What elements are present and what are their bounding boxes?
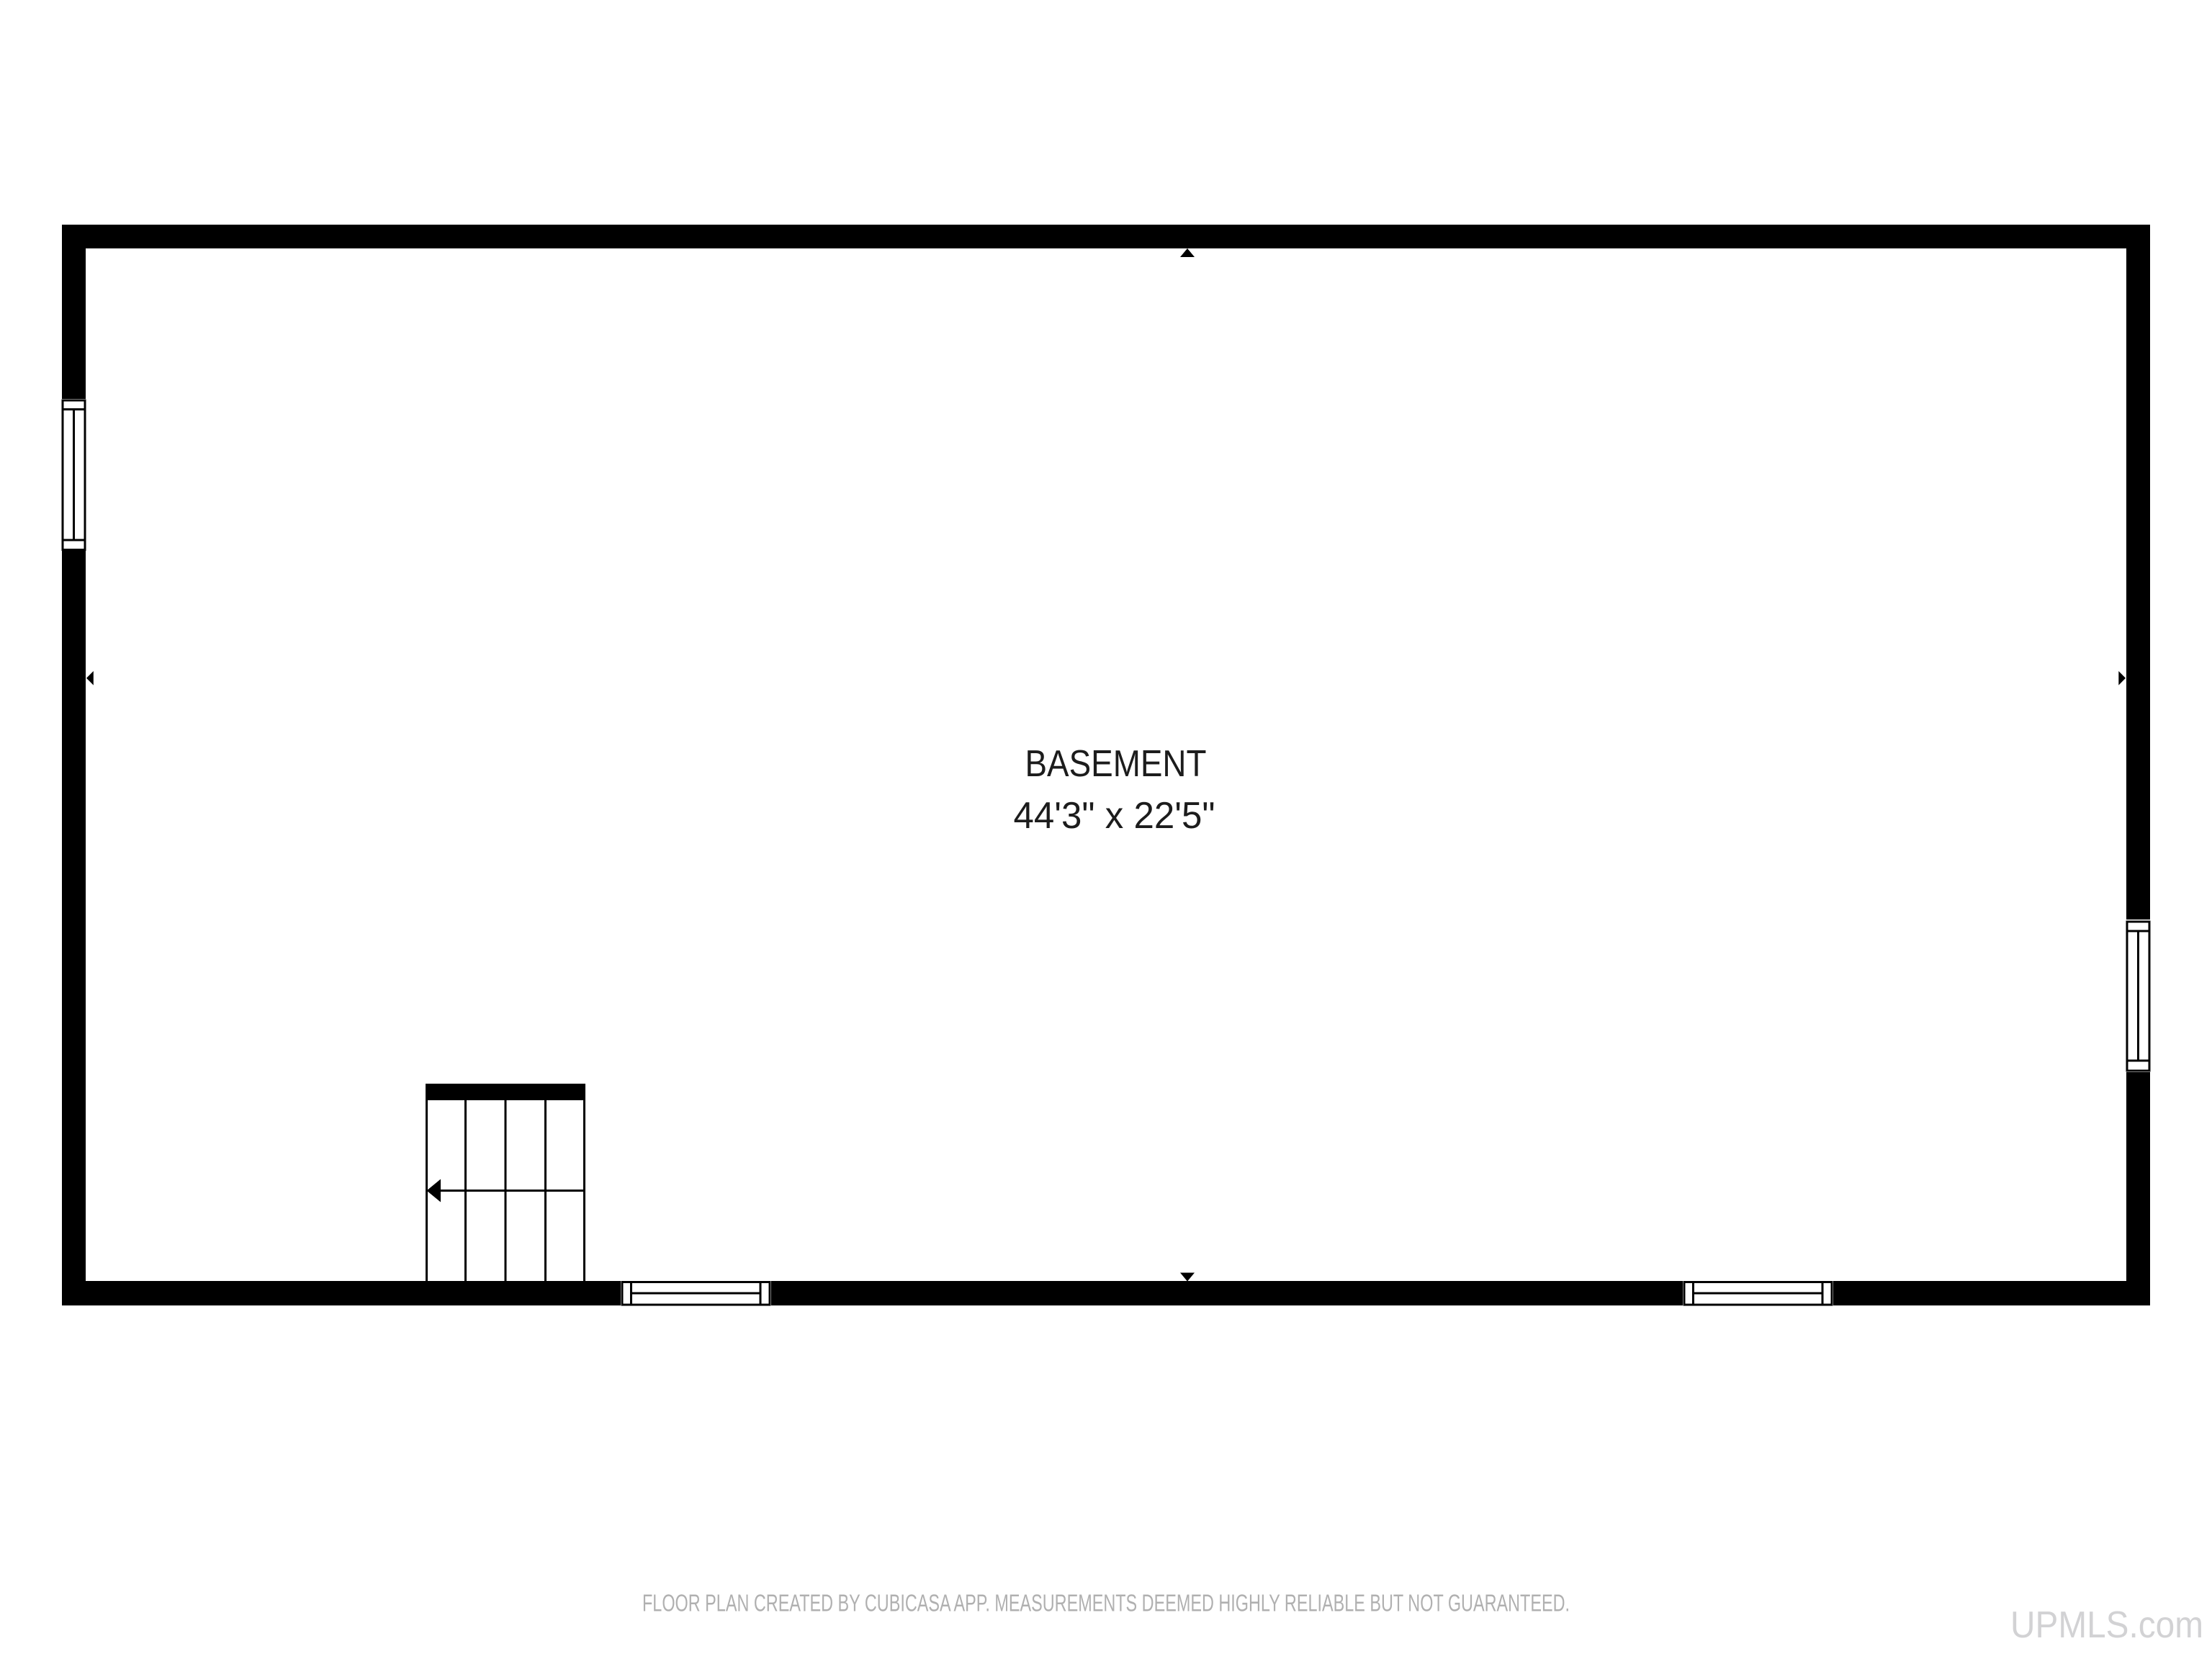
svg-text:44'3" x 22'5": 44'3" x 22'5" — [1014, 795, 1215, 837]
svg-text:BASEMENT: BASEMENT — [1025, 742, 1207, 784]
svg-text:FLOOR PLAN CREATED BY CUBICASA: FLOOR PLAN CREATED BY CUBICASA APP. MEAS… — [642, 1591, 1570, 1617]
svg-text:UPMLS.com: UPMLS.com — [2010, 1604, 2203, 1645]
